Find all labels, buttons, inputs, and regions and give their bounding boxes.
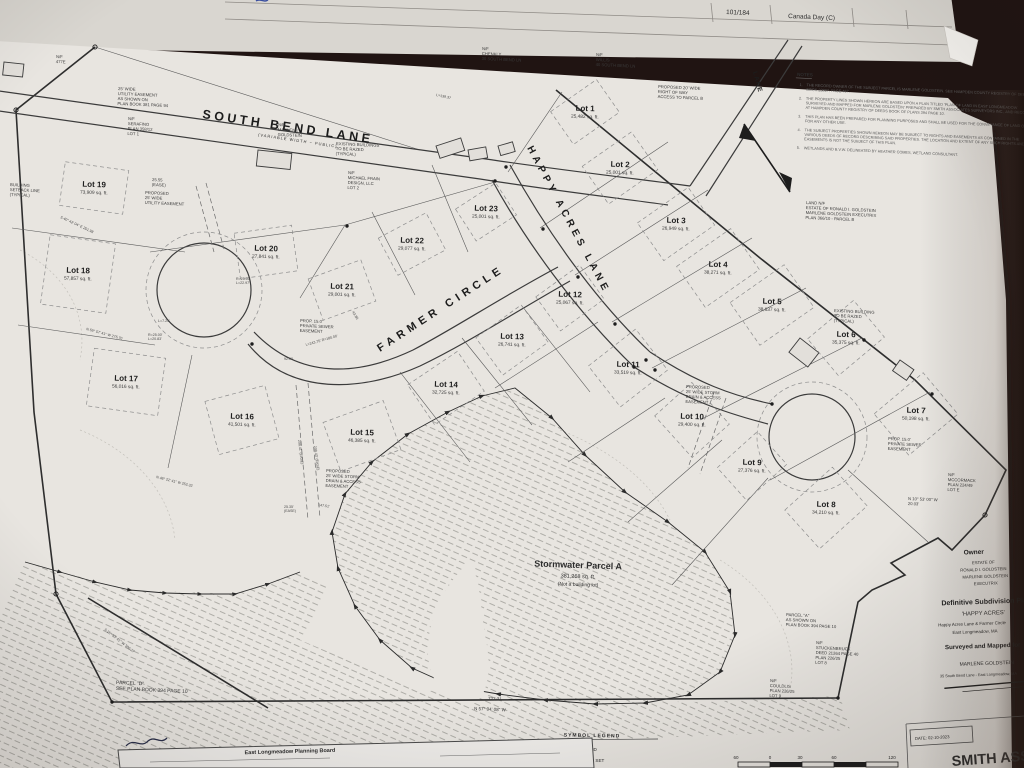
photo-of-subdivision-plan: 101/184 Canada Day (C) Stormwater Parcel… [0, 0, 1024, 768]
plan-drawing: 101/184 Canada Day (C) Stormwater Parcel… [0, 0, 1024, 768]
vignette [0, 0, 1024, 768]
